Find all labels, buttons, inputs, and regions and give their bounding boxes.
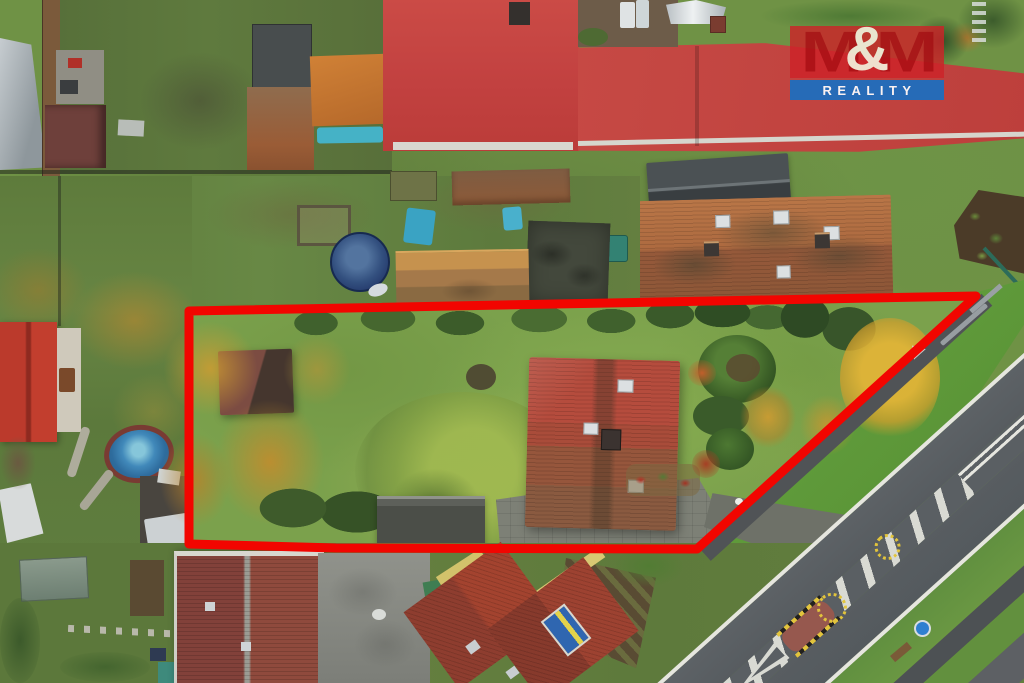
skylight xyxy=(773,210,789,224)
chimney xyxy=(704,241,719,256)
hedge xyxy=(0,598,40,683)
hedge xyxy=(60,652,150,682)
white-tank xyxy=(636,0,649,28)
hedge-row xyxy=(640,292,790,338)
soil-patch xyxy=(140,52,260,150)
dark-item xyxy=(150,648,166,661)
blue-tarp xyxy=(502,206,523,231)
orange-shrub xyxy=(688,360,716,386)
white-terrace xyxy=(57,328,81,432)
skylight xyxy=(583,422,598,434)
bare-shrubs xyxy=(0,436,36,490)
logo-mm-block: M & M xyxy=(790,26,944,78)
white-gutter xyxy=(393,142,573,150)
allotment-fence-line xyxy=(0,170,392,174)
dark-gray-shed xyxy=(252,24,312,88)
dark-junk-item xyxy=(60,80,78,94)
logo-reality-bar: REALITY xyxy=(790,80,944,100)
chimney xyxy=(601,429,622,451)
garage-roof xyxy=(377,496,485,549)
skylight xyxy=(776,265,790,278)
cluttered-patio xyxy=(56,50,104,104)
white-tank xyxy=(620,2,635,28)
roof-seam-shadow xyxy=(695,46,699,146)
greenhouse xyxy=(19,556,89,602)
blue-tarp xyxy=(403,207,436,245)
barn-ridge xyxy=(648,179,790,192)
skylight xyxy=(715,215,730,228)
white-debris xyxy=(118,119,145,136)
white-object xyxy=(372,609,386,620)
rusty-long-roof xyxy=(452,168,571,205)
orange-corrugated-roof xyxy=(310,54,390,127)
bottom-left-house-roof xyxy=(174,551,324,683)
roof-ladder xyxy=(972,0,986,42)
blue-tarp-strip xyxy=(317,126,383,143)
bush-brown-center xyxy=(726,354,760,382)
roof-vent xyxy=(509,2,530,25)
compost-patch xyxy=(130,560,164,616)
maroon-shed-roof xyxy=(45,105,106,168)
backyard-clutter xyxy=(578,0,678,47)
realty-logo: M & M REALITY xyxy=(790,26,944,100)
green-shed xyxy=(390,171,437,201)
blue-traffic-sign xyxy=(914,620,931,637)
skylight xyxy=(617,379,633,392)
logo-ampersand: & xyxy=(845,26,890,78)
skylight xyxy=(241,642,251,651)
rusty-corrugated-shed xyxy=(247,87,314,170)
aerial-property-photo: M & M REALITY xyxy=(0,0,1024,683)
chimney xyxy=(815,232,830,248)
patio-furniture xyxy=(59,368,75,392)
brick-chimney xyxy=(710,16,726,33)
garden-fence-line xyxy=(58,176,61,326)
red-junk-item xyxy=(68,58,82,68)
bush xyxy=(578,28,608,46)
red-warehouse-roof-left xyxy=(383,0,579,151)
skylight xyxy=(205,602,215,611)
red-gable-house xyxy=(0,322,57,442)
autumn-tree xyxy=(150,420,240,540)
mossy-dark-barn-roof xyxy=(526,221,611,306)
bare-soil-spot xyxy=(466,364,496,390)
